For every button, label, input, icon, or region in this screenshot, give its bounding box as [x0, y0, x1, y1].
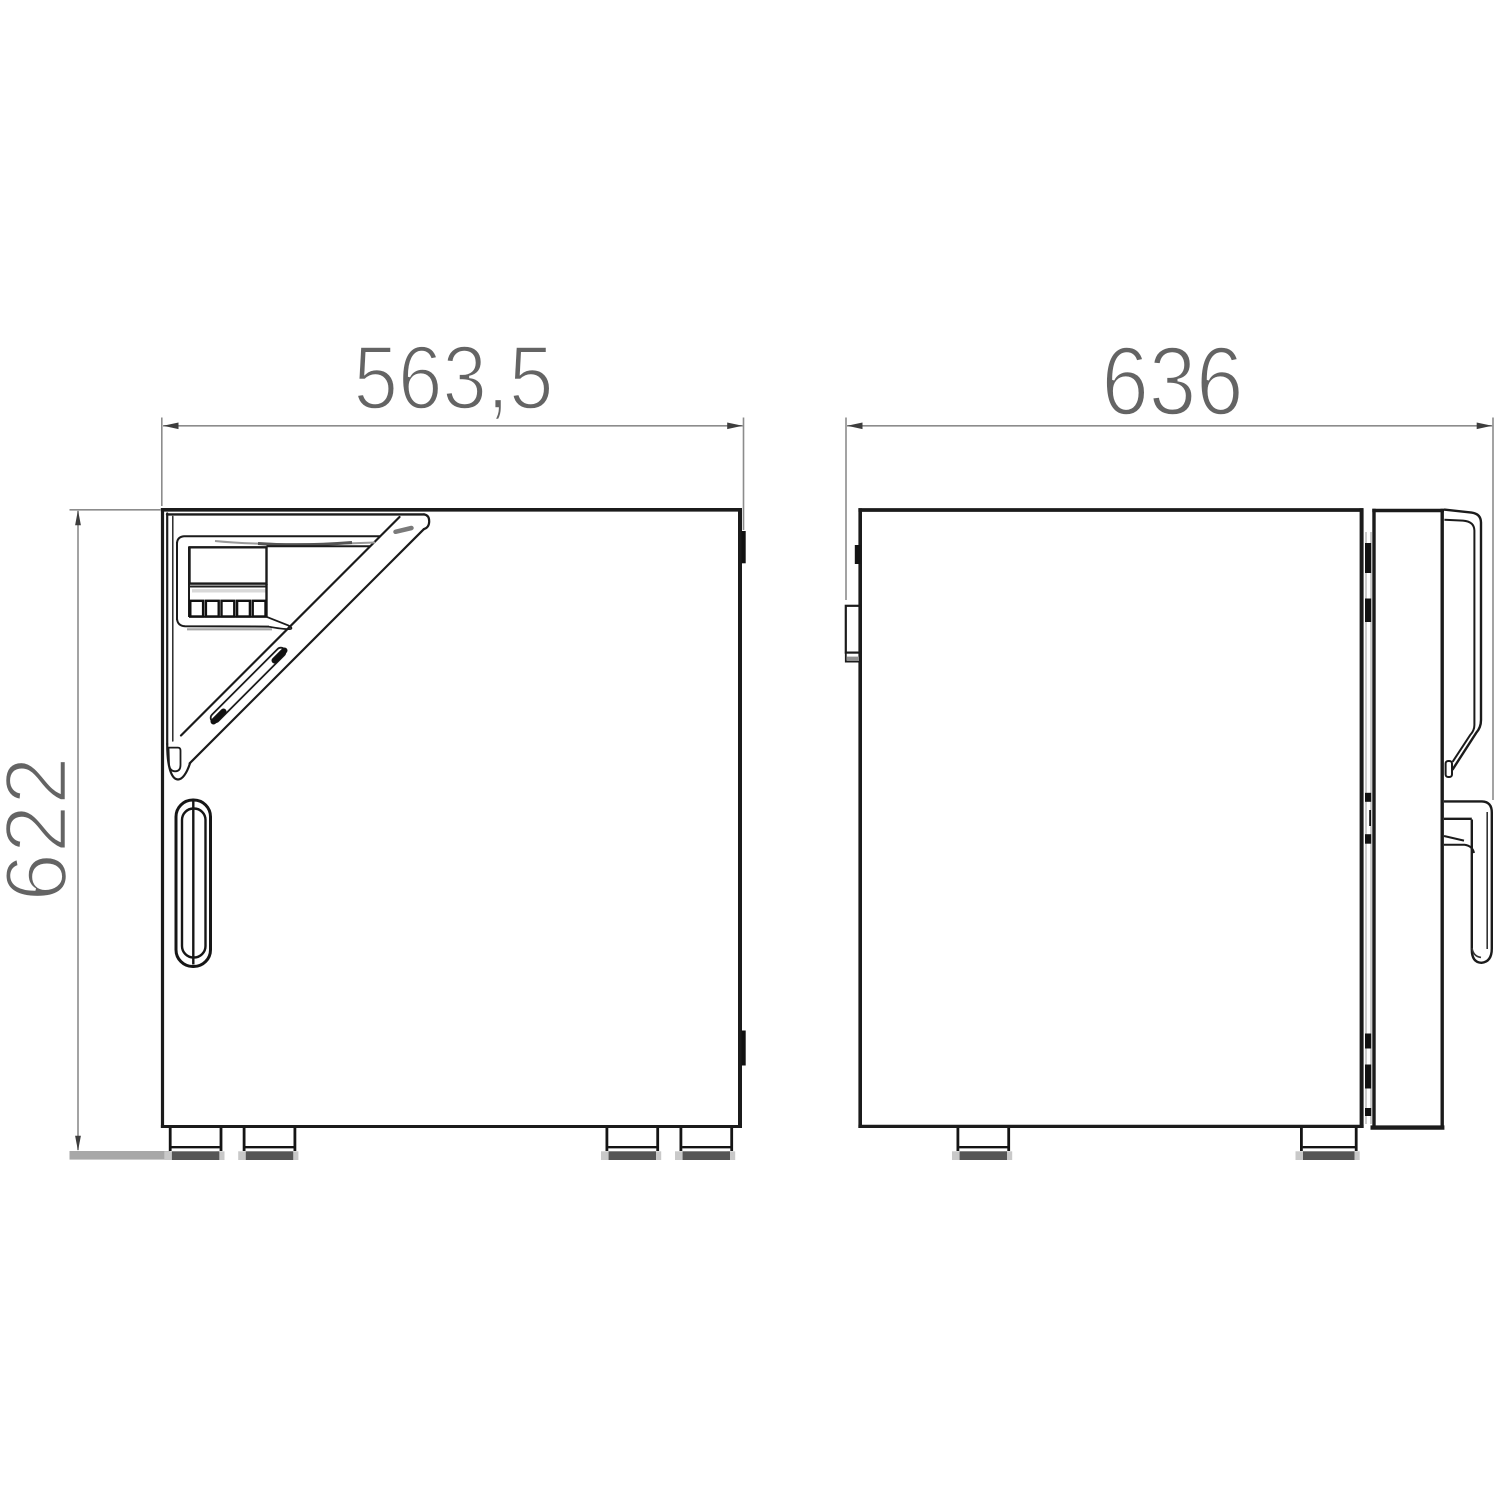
svg-text:622: 622: [0, 757, 85, 902]
svg-text:636: 636: [1102, 327, 1244, 436]
svg-text:563,5: 563,5: [354, 329, 554, 429]
